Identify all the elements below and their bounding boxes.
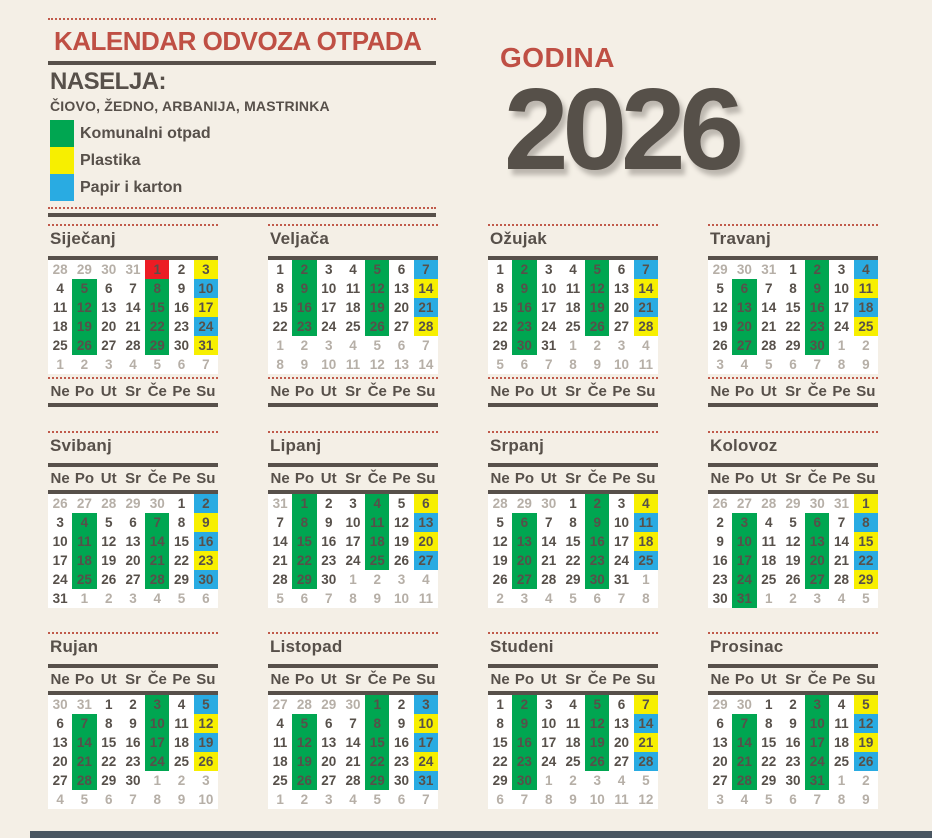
day-cell: 19 bbox=[854, 733, 878, 752]
day-cell: 17 bbox=[341, 532, 365, 551]
weekday-header: NePoUtSrČePeSu bbox=[708, 380, 878, 403]
day-cell: 14 bbox=[732, 733, 756, 752]
day-cell: 23 bbox=[169, 317, 193, 336]
weekday-label: Ne bbox=[708, 671, 732, 688]
day-cell: 20 bbox=[805, 551, 829, 570]
day-cell: 5 bbox=[389, 494, 413, 513]
day-cell: 10 bbox=[389, 589, 413, 608]
day-cell: 6 bbox=[292, 589, 316, 608]
day-cell: 2 bbox=[169, 771, 193, 790]
month-rule bbox=[268, 403, 438, 407]
day-cell: 25 bbox=[341, 317, 365, 336]
day-cell: 1 bbox=[488, 260, 512, 279]
day-cell: 27 bbox=[121, 570, 145, 589]
day-cell: 3 bbox=[389, 570, 413, 589]
day-cell: 10 bbox=[829, 279, 853, 298]
day-cell: 9 bbox=[292, 279, 316, 298]
day-cell: 25 bbox=[634, 551, 658, 570]
day-cell: 5 bbox=[365, 790, 389, 809]
day-cell: 4 bbox=[561, 260, 585, 279]
day-cell: 17 bbox=[805, 733, 829, 752]
day-cell: 19 bbox=[72, 317, 96, 336]
day-cell: 5 bbox=[561, 589, 585, 608]
day-cell: 18 bbox=[829, 733, 853, 752]
day-cell: 30 bbox=[585, 570, 609, 589]
day-cell: 21 bbox=[634, 298, 658, 317]
weekday-label: Sr bbox=[341, 470, 365, 487]
weekday-label: Sr bbox=[341, 671, 365, 688]
day-cell: 20 bbox=[708, 752, 732, 771]
weekday-label: Sr bbox=[341, 383, 365, 400]
day-cell: 29 bbox=[781, 336, 805, 355]
day-cell: 30 bbox=[317, 570, 341, 589]
weekday-header: NePoUtSrČePeSu bbox=[268, 467, 438, 490]
day-cell: 3 bbox=[414, 695, 438, 714]
day-cell: 1 bbox=[757, 695, 781, 714]
day-cell: 19 bbox=[708, 317, 732, 336]
day-cell: 28 bbox=[634, 752, 658, 771]
month-name: Srpanj bbox=[488, 433, 658, 463]
day-cell: 2 bbox=[317, 494, 341, 513]
weekday-label: Ne bbox=[488, 383, 512, 400]
weekday-label: Su bbox=[194, 383, 218, 400]
weekday-label: Če bbox=[805, 671, 829, 688]
weekday-label: Su bbox=[414, 470, 438, 487]
day-cell: 8 bbox=[268, 279, 292, 298]
month-name: Rujan bbox=[48, 634, 218, 664]
month-block-5: SvibanjNePoUtSrČePeSu2627282930123456789… bbox=[48, 431, 218, 608]
weekday-header: NePoUtSrČePeSu bbox=[48, 668, 218, 691]
day-cell: 5 bbox=[781, 513, 805, 532]
day-cell: 25 bbox=[72, 570, 96, 589]
day-cell: 26 bbox=[97, 570, 121, 589]
day-cell: 6 bbox=[317, 714, 341, 733]
day-cell: 4 bbox=[537, 589, 561, 608]
day-cell: 4 bbox=[72, 513, 96, 532]
day-cell: 30 bbox=[708, 589, 732, 608]
day-cell: 19 bbox=[585, 733, 609, 752]
months-grid: Siječanj28293031123456789101112131415161… bbox=[48, 224, 878, 809]
day-cell: 15 bbox=[757, 733, 781, 752]
day-cell: 11 bbox=[854, 279, 878, 298]
year-value: 2026 bbox=[504, 74, 900, 184]
header-bottom-rule bbox=[48, 213, 436, 217]
day-cell: 11 bbox=[829, 714, 853, 733]
day-cell: 3 bbox=[317, 790, 341, 809]
day-cell: 9 bbox=[585, 513, 609, 532]
day-cell: 19 bbox=[585, 298, 609, 317]
weekday-label: Su bbox=[854, 383, 878, 400]
weekday-label: Če bbox=[585, 383, 609, 400]
day-cell: 14 bbox=[414, 355, 438, 374]
day-cell: 4 bbox=[732, 790, 756, 809]
weekday-label: Po bbox=[72, 470, 96, 487]
day-cell: 1 bbox=[292, 494, 316, 513]
day-cell: 18 bbox=[634, 532, 658, 551]
day-cell: 4 bbox=[341, 336, 365, 355]
day-cell: 15 bbox=[561, 532, 585, 551]
day-cell: 29 bbox=[488, 771, 512, 790]
day-cell: 27 bbox=[805, 570, 829, 589]
day-cell: 10 bbox=[414, 714, 438, 733]
day-cell: 10 bbox=[317, 355, 341, 374]
weekday-header: NePoUtSrČePeSu bbox=[268, 668, 438, 691]
day-cell: 5 bbox=[854, 695, 878, 714]
day-cell: 11 bbox=[634, 355, 658, 374]
day-cell: 3 bbox=[317, 336, 341, 355]
day-cell: 25 bbox=[561, 317, 585, 336]
day-cell: 28 bbox=[145, 570, 169, 589]
day-cell: 4 bbox=[561, 695, 585, 714]
day-cell: 13 bbox=[708, 733, 732, 752]
month-name: Prosinac bbox=[708, 634, 878, 664]
month-name: Veljača bbox=[268, 226, 438, 256]
day-cell: 14 bbox=[121, 298, 145, 317]
day-cell: 31 bbox=[268, 494, 292, 513]
day-cell: 8 bbox=[561, 355, 585, 374]
day-cell: 9 bbox=[121, 714, 145, 733]
day-cell: 21 bbox=[145, 551, 169, 570]
weekday-label: Ut bbox=[97, 671, 121, 688]
legend-item-papir-i-karton: Papir i karton bbox=[50, 174, 436, 201]
day-cell: 2 bbox=[488, 589, 512, 608]
weekday-header: NePoUtSrČePeSu bbox=[48, 380, 218, 403]
day-cell: 8 bbox=[488, 279, 512, 298]
weekday-header: NePoUtSrČePeSu bbox=[48, 467, 218, 490]
day-cell: 2 bbox=[121, 695, 145, 714]
day-cell: 12 bbox=[365, 355, 389, 374]
day-cell: 28 bbox=[292, 695, 316, 714]
day-cell: 7 bbox=[732, 714, 756, 733]
day-cell: 9 bbox=[194, 513, 218, 532]
day-cell: 23 bbox=[585, 551, 609, 570]
calendar-page: KALENDAR ODVOZA OTPADA NASELJA: ČIOVO, Ž… bbox=[0, 0, 932, 838]
weekday-label: Su bbox=[854, 470, 878, 487]
day-cell: 27 bbox=[609, 752, 633, 771]
day-cell: 8 bbox=[365, 714, 389, 733]
day-cell: 8 bbox=[145, 279, 169, 298]
day-cell: 12 bbox=[365, 279, 389, 298]
day-cell: 1 bbox=[169, 494, 193, 513]
day-cell: 2 bbox=[389, 695, 413, 714]
day-cell: 5 bbox=[194, 695, 218, 714]
day-cell: 13 bbox=[48, 733, 72, 752]
weekday-label: Su bbox=[414, 671, 438, 688]
day-cell: 24 bbox=[194, 317, 218, 336]
day-cell: 18 bbox=[268, 752, 292, 771]
day-cell: 28 bbox=[121, 336, 145, 355]
day-cell: 23 bbox=[317, 551, 341, 570]
day-cell: 12 bbox=[292, 733, 316, 752]
day-cell: 4 bbox=[609, 771, 633, 790]
day-cell: 26 bbox=[585, 317, 609, 336]
day-cell: 5 bbox=[72, 279, 96, 298]
day-cell: 5 bbox=[757, 355, 781, 374]
year-panel: GODINA 2026 bbox=[500, 42, 900, 184]
day-cell: 19 bbox=[488, 551, 512, 570]
day-cell: 24 bbox=[414, 752, 438, 771]
day-cell: 30 bbox=[169, 336, 193, 355]
day-cell: 22 bbox=[757, 752, 781, 771]
day-cell: 18 bbox=[757, 551, 781, 570]
day-cell: 30 bbox=[805, 494, 829, 513]
weekday-label: Ne bbox=[708, 470, 732, 487]
day-cell: 20 bbox=[389, 298, 413, 317]
day-cell: 4 bbox=[341, 260, 365, 279]
day-cell: 24 bbox=[829, 317, 853, 336]
day-cell: 27 bbox=[732, 494, 756, 513]
day-cell: 3 bbox=[194, 260, 218, 279]
day-cell: 7 bbox=[512, 790, 536, 809]
day-cell: 27 bbox=[512, 570, 536, 589]
weekday-label: Pe bbox=[169, 470, 193, 487]
day-cell: 6 bbox=[609, 260, 633, 279]
weekday-label: Ut bbox=[757, 383, 781, 400]
weekday-label: Sr bbox=[781, 470, 805, 487]
month-name: Siječanj bbox=[48, 226, 218, 256]
legend-label: Plastika bbox=[80, 152, 140, 170]
day-cell: 29 bbox=[365, 771, 389, 790]
day-cell: 21 bbox=[268, 551, 292, 570]
day-cell: 29 bbox=[72, 260, 96, 279]
day-cell: 25 bbox=[365, 551, 389, 570]
day-cell: 12 bbox=[194, 714, 218, 733]
month-name: Kolovoz bbox=[708, 433, 878, 463]
weekday-label: Ne bbox=[48, 383, 72, 400]
day-cell: 8 bbox=[169, 513, 193, 532]
weekday-label: Če bbox=[585, 470, 609, 487]
day-cell: 30 bbox=[512, 771, 536, 790]
day-cell: 3 bbox=[805, 589, 829, 608]
day-cell: 29 bbox=[512, 494, 536, 513]
day-cell: 6 bbox=[512, 513, 536, 532]
day-cell: 23 bbox=[781, 752, 805, 771]
day-cell: 26 bbox=[292, 771, 316, 790]
day-cell: 1 bbox=[561, 494, 585, 513]
day-cell: 28 bbox=[341, 771, 365, 790]
day-cell: 22 bbox=[488, 752, 512, 771]
weekday-label: Pe bbox=[389, 383, 413, 400]
day-cell: 20 bbox=[121, 551, 145, 570]
weekday-label: Ne bbox=[488, 671, 512, 688]
month-days-grid: 2930311234567891011121314151617181920212… bbox=[708, 260, 878, 374]
day-cell: 16 bbox=[121, 733, 145, 752]
day-cell: 18 bbox=[72, 551, 96, 570]
day-cell: 2 bbox=[512, 260, 536, 279]
day-cell: 21 bbox=[829, 551, 853, 570]
day-cell: 27 bbox=[732, 336, 756, 355]
day-cell: 5 bbox=[854, 589, 878, 608]
weekday-label: Ne bbox=[268, 470, 292, 487]
day-cell: 29 bbox=[781, 494, 805, 513]
weekday-label: Pe bbox=[169, 671, 193, 688]
day-cell: 14 bbox=[634, 279, 658, 298]
day-cell: 31 bbox=[537, 336, 561, 355]
day-cell: 27 bbox=[609, 317, 633, 336]
day-cell: 14 bbox=[72, 733, 96, 752]
weekday-label: Ut bbox=[97, 383, 121, 400]
day-cell: 19 bbox=[292, 752, 316, 771]
weekday-label: Su bbox=[194, 671, 218, 688]
day-cell: 14 bbox=[537, 532, 561, 551]
day-cell: 7 bbox=[537, 355, 561, 374]
day-cell: 10 bbox=[609, 355, 633, 374]
day-cell: 26 bbox=[781, 570, 805, 589]
day-cell: 30 bbox=[512, 336, 536, 355]
legend-label: Komunalni otpad bbox=[80, 125, 211, 143]
day-cell: 6 bbox=[609, 695, 633, 714]
day-cell: 14 bbox=[145, 532, 169, 551]
day-cell: 21 bbox=[72, 752, 96, 771]
day-cell: 3 bbox=[609, 494, 633, 513]
day-cell: 30 bbox=[732, 260, 756, 279]
day-cell: 19 bbox=[365, 298, 389, 317]
dotted-divider bbox=[48, 18, 436, 20]
day-cell: 6 bbox=[121, 513, 145, 532]
weekday-label: Če bbox=[585, 671, 609, 688]
day-cell: 28 bbox=[537, 570, 561, 589]
weekday-label: Su bbox=[634, 383, 658, 400]
month-block-8: KolovozNePoUtSrČePeSu2627282930311234567… bbox=[708, 431, 878, 608]
day-cell: 10 bbox=[145, 714, 169, 733]
day-cell: 7 bbox=[268, 513, 292, 532]
naselja-list: ČIOVO, ŽEDNO, ARBANIJA, MASTRINKA bbox=[50, 98, 436, 114]
day-cell: 6 bbox=[708, 714, 732, 733]
day-cell: 17 bbox=[48, 551, 72, 570]
day-cell: 31 bbox=[72, 695, 96, 714]
day-cell: 9 bbox=[389, 714, 413, 733]
day-cell: 4 bbox=[757, 513, 781, 532]
day-cell: 7 bbox=[634, 260, 658, 279]
day-cell: 8 bbox=[488, 714, 512, 733]
day-cell: 3 bbox=[732, 513, 756, 532]
month-days-grid: 1234567891011121314151617181920212223242… bbox=[268, 260, 438, 374]
weekday-label: Ne bbox=[488, 470, 512, 487]
day-cell: 12 bbox=[781, 532, 805, 551]
day-cell: 8 bbox=[292, 513, 316, 532]
day-cell: 13 bbox=[512, 532, 536, 551]
day-cell: 14 bbox=[757, 298, 781, 317]
weekday-label: Ut bbox=[757, 470, 781, 487]
header-panel: KALENDAR ODVOZA OTPADA NASELJA: ČIOVO, Ž… bbox=[48, 18, 436, 209]
day-cell: 23 bbox=[389, 752, 413, 771]
day-cell: 1 bbox=[48, 355, 72, 374]
day-cell: 7 bbox=[121, 279, 145, 298]
weekday-label: Če bbox=[805, 470, 829, 487]
day-cell: 26 bbox=[389, 551, 413, 570]
day-cell: 7 bbox=[72, 714, 96, 733]
day-cell: 5 bbox=[585, 260, 609, 279]
day-cell: 31 bbox=[48, 589, 72, 608]
weekday-header: NePoUtSrČePeSu bbox=[488, 668, 658, 691]
weekday-label: Ut bbox=[537, 671, 561, 688]
weekday-label: Su bbox=[634, 671, 658, 688]
month-days-grid: 1234567891011121314151617181920212223242… bbox=[488, 260, 658, 374]
day-cell: 7 bbox=[634, 695, 658, 714]
dotted-divider bbox=[48, 207, 436, 209]
day-cell: 16 bbox=[317, 532, 341, 551]
day-cell: 1 bbox=[561, 336, 585, 355]
day-cell: 17 bbox=[414, 733, 438, 752]
day-cell: 8 bbox=[268, 355, 292, 374]
day-cell: 13 bbox=[389, 355, 413, 374]
day-cell: 3 bbox=[317, 260, 341, 279]
day-cell: 18 bbox=[169, 733, 193, 752]
day-cell: 2 bbox=[292, 336, 316, 355]
weekday-header: NePoUtSrČePeSu bbox=[268, 380, 438, 403]
day-cell: 20 bbox=[609, 298, 633, 317]
day-cell: 9 bbox=[365, 589, 389, 608]
weekday-label: Sr bbox=[781, 383, 805, 400]
weekday-label: Po bbox=[72, 671, 96, 688]
day-cell: 1 bbox=[634, 570, 658, 589]
day-cell: 12 bbox=[389, 513, 413, 532]
page-title: KALENDAR ODVOZA OTPADA bbox=[54, 26, 436, 57]
day-cell: 6 bbox=[169, 355, 193, 374]
day-cell: 21 bbox=[121, 317, 145, 336]
weekday-label: Ut bbox=[757, 671, 781, 688]
day-cell: 3 bbox=[194, 771, 218, 790]
day-cell: 26 bbox=[72, 336, 96, 355]
weekday-label: Pe bbox=[169, 383, 193, 400]
day-cell: 1 bbox=[781, 260, 805, 279]
day-cell: 29 bbox=[317, 695, 341, 714]
day-cell: 5 bbox=[268, 589, 292, 608]
day-cell: 1 bbox=[757, 589, 781, 608]
weekday-label: Pe bbox=[389, 470, 413, 487]
day-cell: 23 bbox=[512, 752, 536, 771]
day-cell: 26 bbox=[585, 752, 609, 771]
day-cell: 9 bbox=[781, 714, 805, 733]
weekday-label: Po bbox=[512, 383, 536, 400]
weekday-label: Su bbox=[414, 383, 438, 400]
day-cell: 31 bbox=[414, 771, 438, 790]
weekday-label: Če bbox=[365, 671, 389, 688]
yellow-swatch-icon bbox=[50, 147, 74, 174]
day-cell: 13 bbox=[121, 532, 145, 551]
day-cell: 16 bbox=[708, 551, 732, 570]
day-cell: 22 bbox=[268, 317, 292, 336]
day-cell: 10 bbox=[585, 790, 609, 809]
day-cell: 4 bbox=[365, 494, 389, 513]
day-cell: 29 bbox=[145, 336, 169, 355]
day-cell: 17 bbox=[732, 551, 756, 570]
day-cell: 5 bbox=[488, 513, 512, 532]
day-cell: 16 bbox=[781, 733, 805, 752]
day-cell: 24 bbox=[341, 551, 365, 570]
month-name: Ožujak bbox=[488, 226, 658, 256]
day-cell: 5 bbox=[97, 513, 121, 532]
day-cell: 1 bbox=[488, 695, 512, 714]
day-cell: 13 bbox=[732, 298, 756, 317]
day-cell: 3 bbox=[341, 494, 365, 513]
day-cell: 10 bbox=[609, 513, 633, 532]
day-cell: 12 bbox=[634, 790, 658, 809]
day-cell: 4 bbox=[854, 260, 878, 279]
day-cell: 28 bbox=[757, 494, 781, 513]
day-cell: 6 bbox=[389, 790, 413, 809]
day-cell: 7 bbox=[317, 589, 341, 608]
weekday-label: Če bbox=[365, 470, 389, 487]
day-cell: 7 bbox=[537, 513, 561, 532]
weekday-label: Sr bbox=[561, 470, 585, 487]
blue-swatch-icon bbox=[50, 174, 74, 201]
day-cell: 6 bbox=[97, 790, 121, 809]
day-cell: 15 bbox=[781, 298, 805, 317]
legend: Komunalni otpad Plastika Papir i karton bbox=[50, 120, 436, 201]
day-cell: 9 bbox=[805, 279, 829, 298]
day-cell: 26 bbox=[194, 752, 218, 771]
